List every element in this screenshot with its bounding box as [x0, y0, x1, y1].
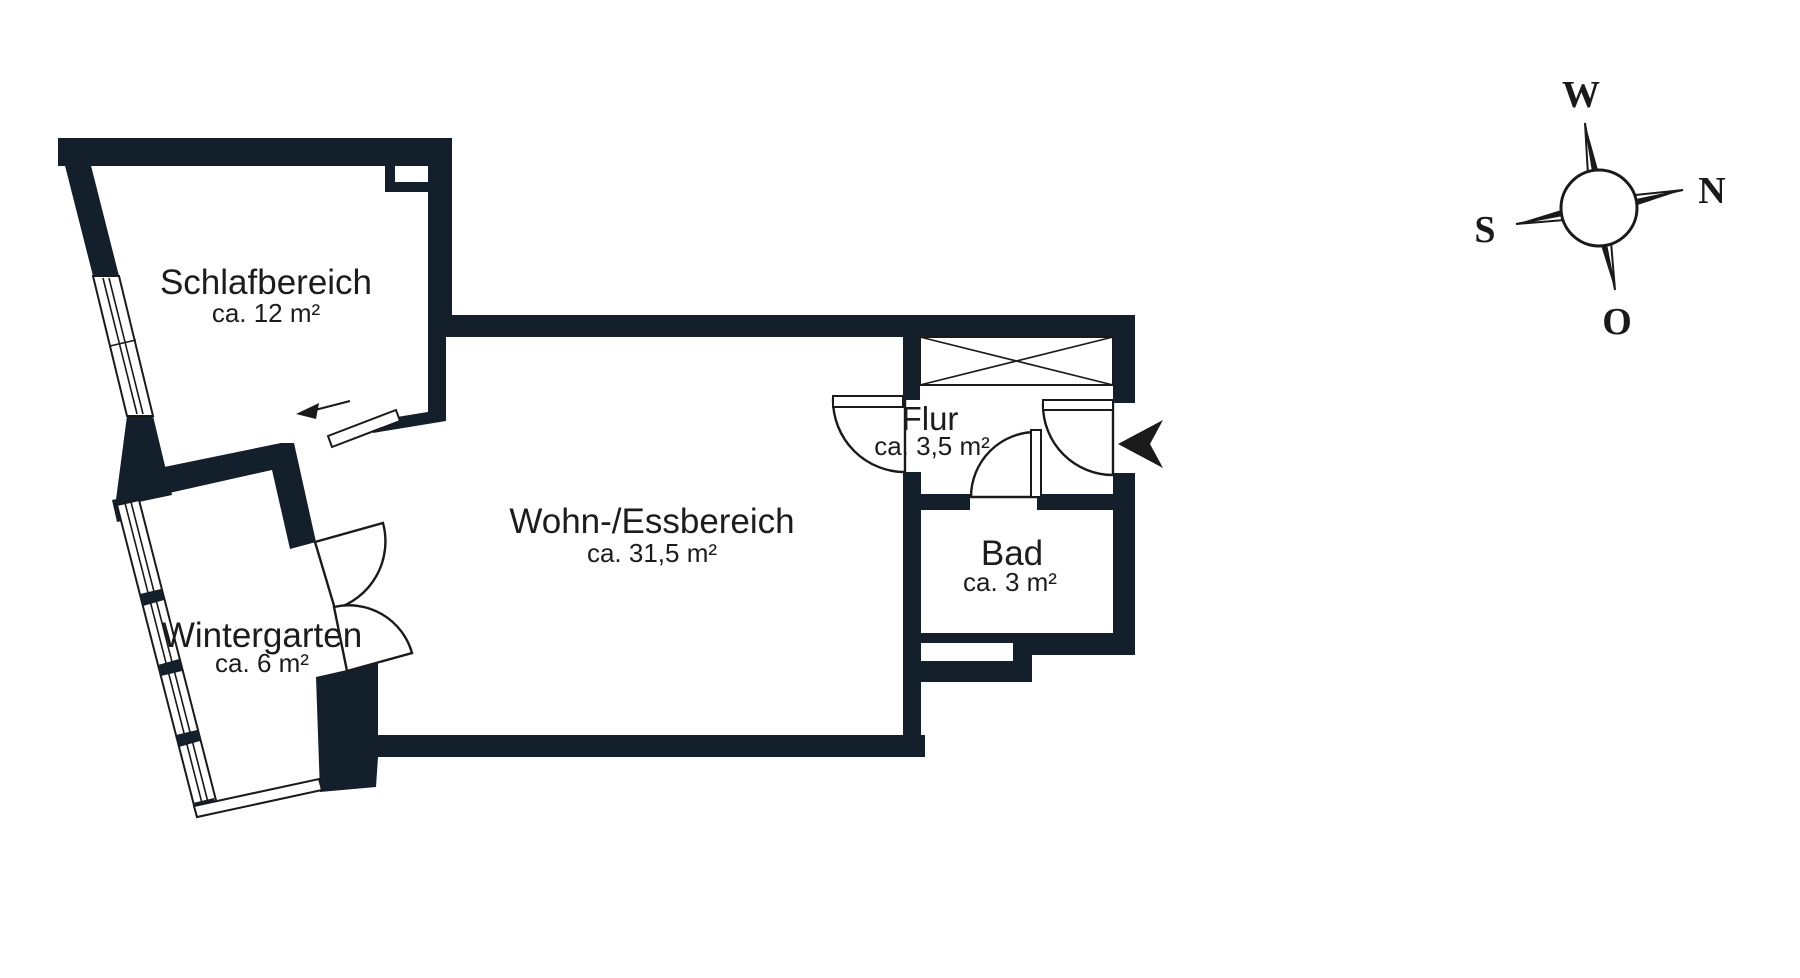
wall-niche-bottom [385, 182, 430, 192]
wall-bad-left-column [903, 472, 921, 757]
room-area-flur: ca. 3,5 m² [874, 431, 990, 461]
wall-wintergarten-block [316, 663, 378, 792]
wall-schlaf-top [58, 138, 452, 166]
room-area-schlafbereich: ca. 12 m² [212, 298, 321, 328]
door-flur-leaf [833, 396, 903, 407]
floor-plan-svg: W N S O Schlafbereich ca. 12 m² Wohn-/Es… [0, 0, 1800, 978]
wall-wohn-bottom [358, 735, 925, 757]
room-area-wohn-essbereich: ca. 31,5 m² [587, 538, 717, 568]
closet-symbol [920, 337, 1113, 385]
door-bad-leaf [1031, 430, 1041, 497]
wall-schlaf-right-lower [428, 337, 446, 413]
wall-shaft-connector [1013, 643, 1032, 682]
wall-right-lower [1113, 473, 1135, 655]
windows [93, 276, 322, 817]
room-label-schlafbereich: Schlafbereich [160, 263, 372, 302]
door-wintergarten-upper [315, 523, 385, 609]
floor-plan-page: W N S O Schlafbereich ca. 12 m² Wohn-/Es… [0, 0, 1800, 978]
sliding-door-schlafbereich [296, 401, 400, 447]
entrance-arrow-icon [1118, 420, 1163, 468]
wall-bad-bottom-right [1032, 643, 1135, 655]
compass-circle [1561, 170, 1637, 246]
compass-label-north: N [1698, 170, 1725, 212]
compass-rose: W N S O [1474, 74, 1725, 343]
wall-bad-divider-right [1037, 494, 1113, 510]
window-schlafbereich [93, 276, 153, 416]
sliding-door-arrow-head [296, 403, 319, 419]
wall-shaft-bottom [903, 661, 1032, 682]
room-label-wohn-essbereich: Wohn-/Essbereich [509, 502, 794, 541]
wall-right-upper [1113, 315, 1135, 403]
wall-wohn-top [446, 315, 1135, 337]
compass-label-west: W [1562, 74, 1600, 116]
room-area-wintergarten: ca. 6 m² [215, 648, 309, 678]
compass-label-south: S [1474, 209, 1495, 251]
room-area-bad: ca. 3 m² [963, 567, 1057, 597]
compass-label-east: O [1602, 301, 1632, 343]
door-entrance [1043, 400, 1113, 475]
wall-flur-stub [903, 337, 920, 400]
sliding-door-arrow-line [315, 401, 350, 410]
door-entrance-leaf [1043, 400, 1113, 410]
wall-schlaf-right-upper [428, 138, 452, 337]
walls [58, 138, 1135, 792]
wall-bad-bottom-thin [917, 633, 1113, 643]
window-wintergarten-left [117, 500, 219, 817]
door-entrance-swing [1043, 405, 1113, 475]
